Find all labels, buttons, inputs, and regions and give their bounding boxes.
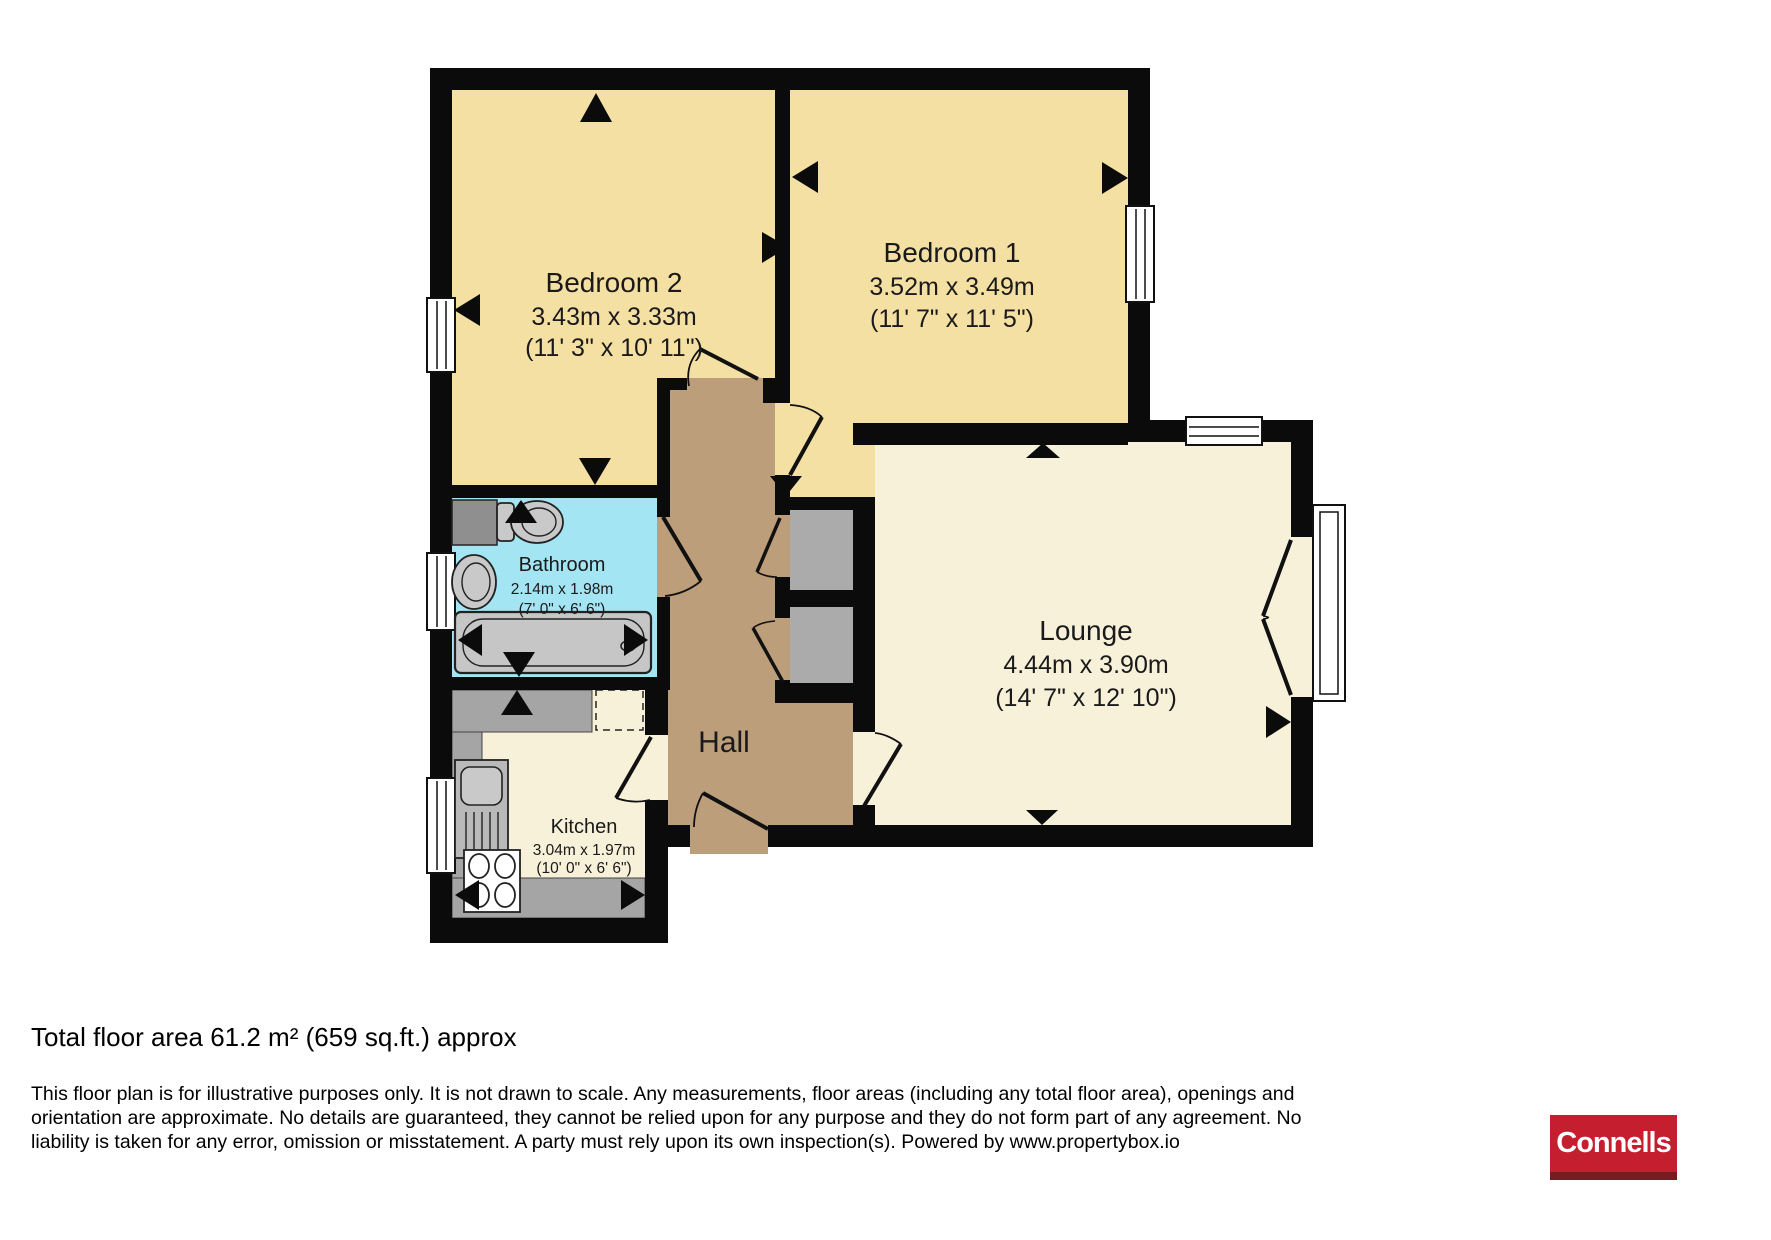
disclaimer-line: This floor plan is for illustrative purp… [31,1082,1331,1106]
kitchen-dim-imperial: (10' 0" x 6' 6") [536,860,631,877]
disclaimer-line: orientation are approximate. No details … [31,1106,1331,1130]
lounge-dim-imperial: (14' 7" x 12' 10") [995,684,1177,712]
closet-lower [790,607,853,683]
wall-lounge-right-lower [1291,697,1313,847]
sink-icon [455,760,508,858]
wall-bedroom1-bottom [853,423,1128,445]
wall-hall-top-left [657,378,687,390]
bathroom-window-icon [427,553,455,630]
bedroom2-door-opening [687,378,763,390]
bedroom2-dim-metric: 3.43m x 3.33m [531,303,696,331]
bedroom1-label: Bedroom 1 [884,237,1021,268]
wall-bed2-bath [452,485,657,498]
kitchen-label: Kitchen [551,816,618,838]
lounge-window-icon [1186,417,1262,445]
wall-top [430,68,1150,90]
bedroom1-window-icon [1126,206,1154,302]
bedroom2-dim-imperial: (11' 3" x 10' 11") [525,334,703,362]
entry-door-opening [690,825,768,854]
closet-upper [790,510,853,590]
bedroom2-window-icon [427,298,455,372]
bedroom1-dim-imperial: (11' 7" x 11' 5") [870,305,1034,333]
wall-lounge-right-upper [1291,420,1313,537]
wall-bath-kitchen [452,677,657,690]
bathroom-label: Bathroom [519,554,606,576]
bedroom2-label: Bedroom 2 [546,267,683,298]
connells-logo-text: Connells [1556,1127,1670,1160]
disclaimer: This floor plan is for illustrative purp… [31,1082,1331,1154]
basin-icon [452,555,496,609]
hall-label: Hall [698,726,750,759]
connells-logo-strip [1550,1172,1677,1180]
kitchen-dim-metric: 3.04m x 1.97m [533,842,636,859]
connells-logo-box: Connells [1550,1115,1677,1172]
disclaimer-line: liability is taken for any error, omissi… [31,1130,1331,1154]
wall-divider-corner [763,378,790,403]
wall-bottom-kitchen [430,918,668,943]
bathtub-icon [455,612,651,673]
bedroom1-dim-metric: 3.52m x 3.49m [869,273,1034,301]
connells-logo: Connells [1550,1115,1677,1180]
kitchen-appliance-space [596,690,643,730]
wall-kitchen-right [645,677,668,943]
balcony-step-icon [1313,505,1345,701]
page: { "rooms": { "bedroom2": { "name": "Bedr… [0,0,1771,1240]
lounge-label: Lounge [1039,615,1132,646]
french-door-opening [1291,537,1313,697]
total-floor-area: Total floor area 61.2 m² (659 sq.ft.) ap… [31,1022,517,1053]
lounge-dim-metric: 4.44m x 3.90m [1003,651,1168,679]
bathroom-dim-imperial: (7' 0" x 6' 6") [519,601,606,618]
bedroom1-door-opening [775,403,790,475]
bathroom-dim-metric: 2.14m x 1.98m [511,581,614,598]
bathroom-unit-icon [452,500,497,545]
kitchen-window-icon [427,778,455,873]
floor-plan: Bedroom 2 3.43m x 3.33m (11' 3" x 10' 11… [0,0,1771,1240]
